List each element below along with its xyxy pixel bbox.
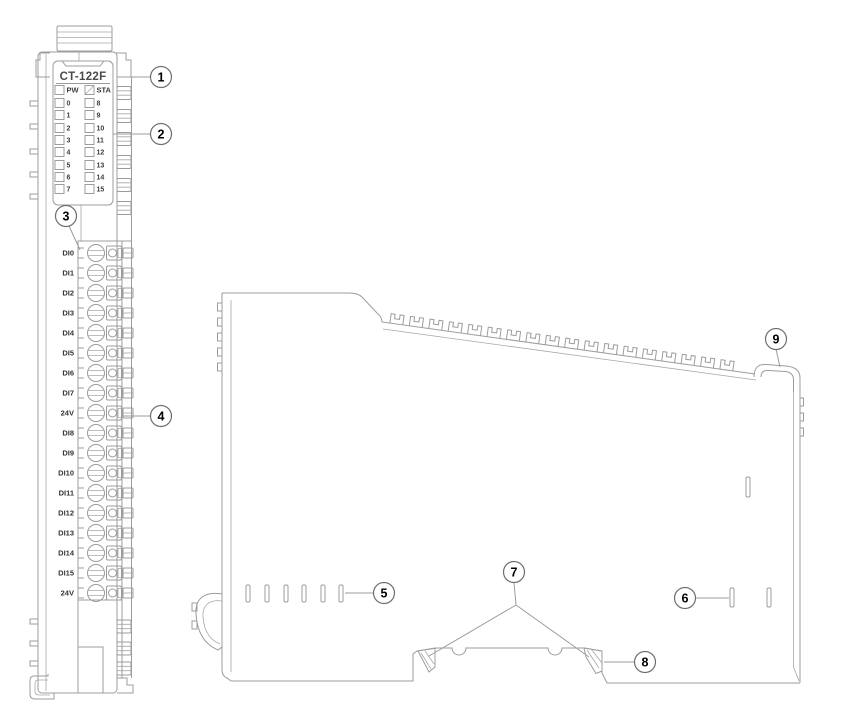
channel-led-icon [55, 136, 64, 145]
bus-tooth-icon [117, 87, 131, 100]
led-label: 1 [67, 113, 71, 120]
wire-entry-icon [78, 328, 84, 338]
terminal-label: DI4 [62, 329, 75, 338]
terminal-row: DI14 [58, 545, 133, 562]
callout-1-module-label: 1 [117, 67, 172, 88]
bus-tooth-icon [117, 662, 131, 675]
callout-number: 3 [63, 210, 70, 224]
wire-entry-icon [78, 288, 84, 298]
screw-terminal-icon [88, 465, 105, 482]
channel-led-icon [85, 148, 94, 157]
terminal-label: DI1 [62, 269, 74, 278]
bus-tooth-icon [117, 620, 131, 633]
led-row: 5 13 [55, 161, 104, 170]
led-label: 7 [67, 187, 71, 194]
channel-led-icon [55, 173, 64, 182]
terminal-clamp-icon [107, 266, 122, 280]
callout-6-right-slots: 6 [675, 588, 730, 609]
led-label: 2 [67, 126, 71, 133]
wire-entry-icon [78, 348, 84, 358]
callout-7-din-latches: 7 [429, 562, 589, 658]
led-row: 6 14 [55, 173, 104, 182]
screw-terminal-icon [88, 565, 105, 582]
base-section [30, 600, 133, 699]
terminal-teeth-side [390, 314, 734, 371]
terminal-row: DI12 [58, 505, 133, 522]
bus-tooth-icon [117, 156, 131, 169]
wire-entry-icon [78, 528, 84, 538]
bottom-right-hook [117, 678, 133, 693]
channel-led-icon [85, 99, 94, 108]
channel-led-icon [55, 185, 64, 194]
channel-led-icon [55, 99, 64, 108]
terminal-clamp-icon [107, 526, 122, 540]
power-led-icon [55, 86, 64, 95]
side-slot [746, 477, 750, 497]
led-label: 12 [97, 150, 105, 157]
terminal-label: DI8 [62, 429, 74, 438]
callout-number: 9 [773, 333, 780, 347]
power-led-label: PW [67, 86, 80, 95]
terminal-clamp-icon [107, 306, 122, 320]
screw-terminal-icon [88, 345, 105, 362]
led-row: 3 11 [55, 136, 104, 145]
screw-terminal-icon [88, 285, 105, 302]
terminal-label: 24V [61, 589, 74, 598]
led-row: 2 10 [55, 124, 104, 133]
terminal-label: DI14 [58, 549, 75, 558]
terminal-label: DI3 [62, 309, 74, 318]
screw-terminal-icon [88, 585, 105, 602]
front-view: CT-122F PW STA 0 8 1 9 2 [30, 26, 133, 699]
module-diagram-page: CT-122F PW STA 0 8 1 9 2 [0, 0, 843, 720]
terminal-clamp-icon [107, 246, 122, 260]
screw-terminal-icon [88, 245, 105, 262]
callout-5-vent-slots: 5 [345, 583, 395, 604]
terminal-label: DI2 [62, 289, 74, 298]
channel-led-icon [85, 173, 94, 182]
bus-tooth-icon [117, 110, 131, 123]
callout-number: 8 [642, 656, 649, 670]
terminal-row: DI15 [58, 565, 133, 582]
vent-slots-left [246, 585, 343, 602]
channel-led-icon [85, 161, 94, 170]
led-row: 4 12 [55, 148, 104, 157]
wire-entry-icon [78, 268, 84, 278]
release-latch-handle [754, 364, 800, 393]
terminal-clamp-icon [107, 446, 122, 460]
screw-terminal-icon [88, 265, 105, 282]
terminal-clamp-icon [107, 466, 122, 480]
led-row: 1 9 [55, 111, 101, 120]
terminal-clamp-icon [107, 566, 122, 580]
wire-entry-icon [78, 448, 84, 458]
terminal-row: DI10 [58, 465, 133, 482]
channel-led-icon [55, 124, 64, 133]
left-edge-notches [218, 303, 223, 371]
screw-terminal-icon [88, 485, 105, 502]
terminal-clamp-icon [107, 386, 122, 400]
terminal-clamp-icon [107, 426, 122, 440]
terminal-label: DI6 [62, 369, 74, 378]
wire-entry-icon [78, 408, 84, 418]
channel-led-icon [85, 111, 94, 120]
terminal-label: DI7 [62, 389, 74, 398]
right-edge-notches [800, 398, 804, 436]
led-label: 11 [97, 138, 105, 145]
wire-entry-icon [78, 488, 84, 498]
led-panel: CT-122F PW STA 0 8 1 9 2 [53, 61, 113, 205]
screw-terminal-icon [88, 525, 105, 542]
led-label: 0 [67, 101, 71, 108]
din-latch-left [418, 648, 435, 672]
led-row: 7 15 [55, 185, 104, 194]
led-label: 6 [67, 175, 71, 182]
wire-entry-icon [78, 548, 84, 558]
led-label: 4 [67, 150, 71, 157]
wire-entry-icon [78, 248, 84, 258]
led-label: 15 [97, 187, 105, 194]
callout-9-release-handle: 9 [766, 329, 787, 368]
screw-terminal-icon [88, 385, 105, 402]
terminal-label: DI15 [58, 569, 74, 578]
callout-8-latch: 8 [604, 652, 656, 673]
wire-entry-icon [78, 308, 84, 318]
channel-led-icon [85, 136, 94, 145]
wire-entry-icon [78, 468, 84, 478]
terminal-row: DI13 [58, 525, 133, 542]
bus-tooth-icon [117, 642, 131, 655]
wire-entry-icon [78, 428, 84, 438]
ct-122f-module-diagram: CT-122F PW STA 0 8 1 9 2 [0, 0, 843, 720]
terminal-clamp-icon [107, 366, 122, 380]
channel-led-icon [55, 148, 64, 157]
side-view [192, 293, 804, 683]
bus-connector-teeth [117, 87, 131, 676]
callout-3-terminal-top: 3 [56, 206, 81, 251]
led-label: 14 [97, 175, 105, 182]
led-row: 0 8 [55, 99, 101, 108]
terminal-label: DI10 [58, 469, 74, 478]
terminal-label: DI12 [58, 509, 74, 518]
terminal-clamp-icon [107, 326, 122, 340]
terminal-clamp-icon [107, 406, 122, 420]
channel-led-icon [55, 161, 64, 170]
callout-number: 2 [158, 128, 165, 142]
callout-number: 7 [511, 566, 518, 580]
left-tabs [30, 101, 38, 666]
wire-entry-icon [78, 568, 84, 578]
terminal-clamp-icon [107, 586, 122, 600]
terminal-row: DI11 [59, 485, 133, 502]
callout-number: 1 [158, 71, 165, 85]
screw-terminal-icon [88, 365, 105, 382]
top-clip [57, 26, 112, 51]
led-label: 8 [97, 101, 101, 108]
terminal-clamp-icon [107, 546, 122, 560]
led-label: 9 [97, 113, 101, 120]
callout-number: 4 [158, 410, 165, 424]
bus-tooth-icon [117, 202, 131, 215]
terminal-clamp-icon [107, 346, 122, 360]
terminal-label: DI11 [59, 489, 74, 498]
screw-terminal-icon [88, 505, 105, 522]
vent-slots-right [730, 588, 771, 607]
screw-terminal-icon [88, 405, 105, 422]
terminal-label: DI0 [62, 249, 74, 258]
bus-tooth-icon [117, 179, 131, 192]
terminal-clamp-icon [107, 286, 122, 300]
led-label: 13 [97, 163, 105, 170]
screw-terminal-icon [88, 545, 105, 562]
terminal-clamp-icon [107, 506, 122, 520]
terminal-label: 24V [61, 409, 74, 418]
wire-entry-icon [78, 588, 84, 598]
screw-terminal-icon [88, 325, 105, 342]
callout-number: 6 [682, 592, 689, 606]
channel-led-icon [85, 124, 94, 133]
screw-terminal-icon [88, 305, 105, 322]
channel-led-icon [55, 111, 64, 120]
screw-terminal-icon [88, 445, 105, 462]
terminal-label: DI9 [62, 449, 74, 458]
channel-led-icon [85, 185, 94, 194]
din-latch-right [584, 648, 602, 674]
terminal-label: DI13 [58, 529, 74, 538]
terminal-block: DI0 DI1 DI2 DI3 [58, 241, 133, 602]
status-led-label: STA [97, 86, 112, 95]
din-hook [192, 593, 222, 650]
led-label: 5 [67, 163, 71, 170]
wire-entry-icon [78, 388, 84, 398]
module-model-label: CT-122F [60, 71, 107, 83]
top-right-hook [116, 53, 131, 77]
callout-4-terminals: 4 [122, 406, 172, 427]
terminal-clamp-icon [107, 486, 122, 500]
led-label: 10 [97, 126, 105, 133]
screw-terminal-icon [88, 425, 105, 442]
wire-entry-icon [78, 368, 84, 378]
wire-entry-icon [78, 508, 84, 518]
led-label: 3 [67, 138, 71, 145]
callout-number: 5 [381, 587, 388, 601]
terminal-label: DI5 [62, 349, 74, 358]
